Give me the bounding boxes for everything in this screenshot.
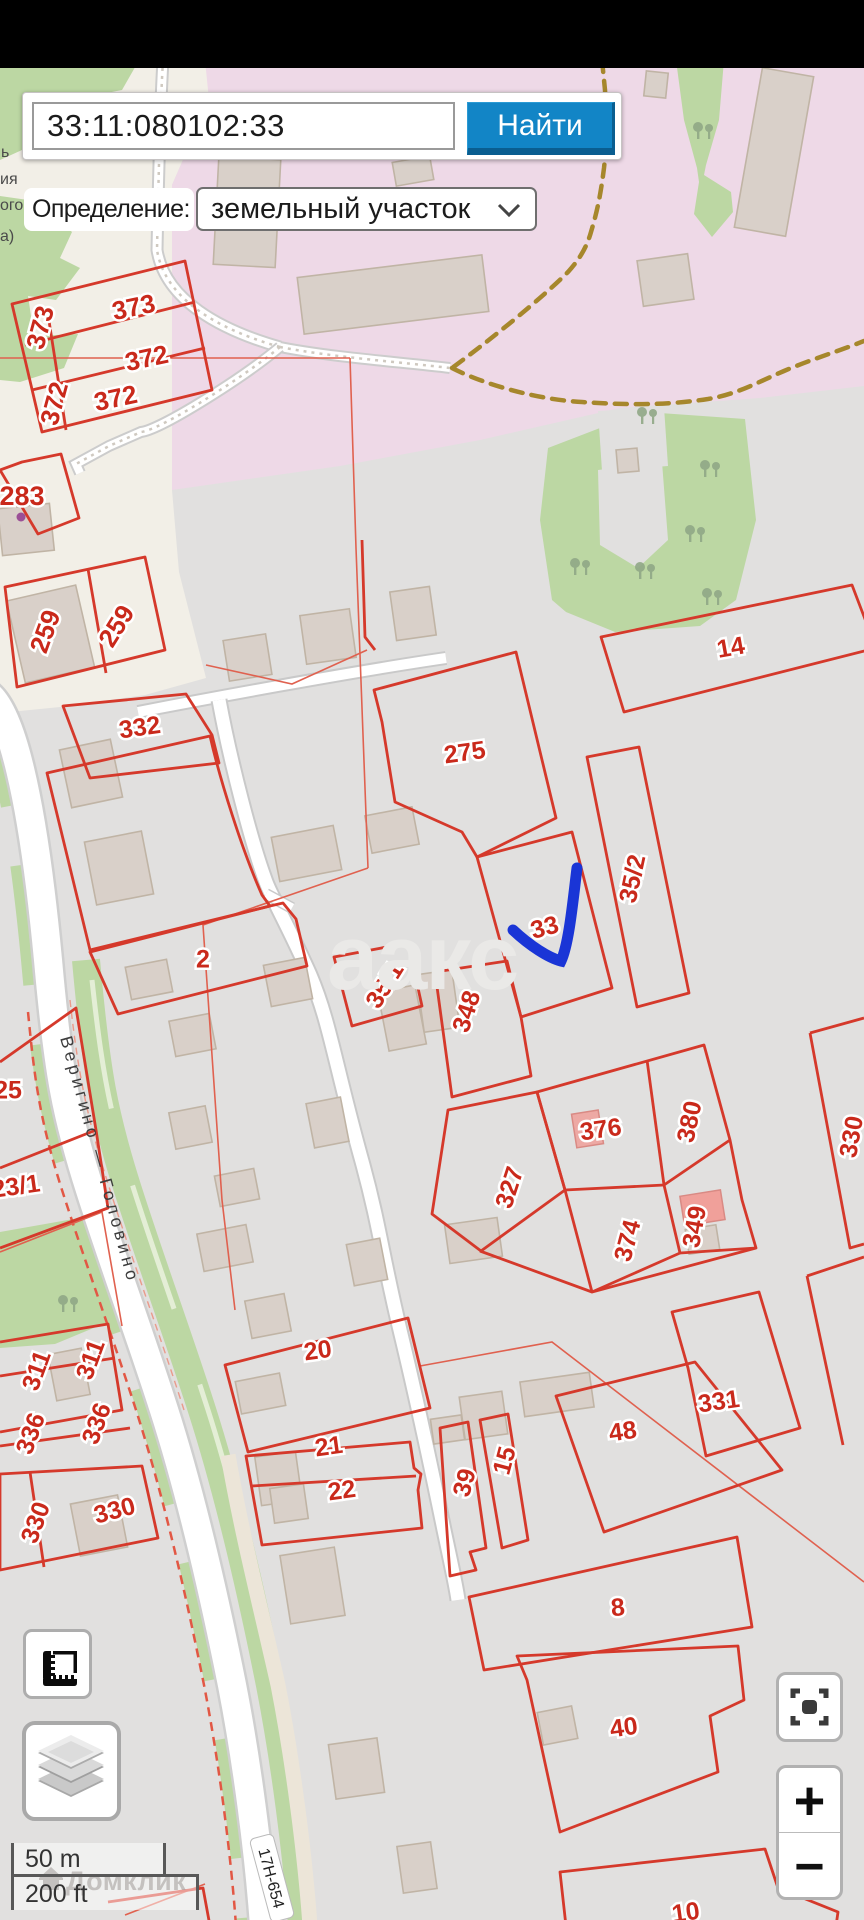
svg-text:376: 376 bbox=[578, 1113, 623, 1147]
svg-text:25: 25 bbox=[0, 1077, 22, 1105]
svg-text:ия: ия bbox=[0, 171, 18, 188]
svg-text:331: 331 bbox=[696, 1385, 741, 1419]
svg-text:40: 40 bbox=[608, 1712, 639, 1744]
svg-text:20: 20 bbox=[302, 1335, 333, 1367]
svg-text:аакс: аакс bbox=[327, 907, 517, 1009]
svg-text:2: 2 bbox=[196, 946, 210, 974]
svg-text:ь: ь bbox=[1, 144, 9, 161]
svg-text:а): а) bbox=[0, 228, 14, 245]
svg-text:50 m: 50 m bbox=[25, 1845, 81, 1873]
svg-text:8: 8 bbox=[610, 1593, 626, 1622]
svg-text:275: 275 bbox=[442, 736, 487, 770]
svg-text:10: 10 bbox=[670, 1897, 701, 1920]
svg-text:22: 22 bbox=[326, 1475, 357, 1507]
svg-text:200 ft: 200 ft bbox=[25, 1880, 88, 1908]
svg-text:ого: ого bbox=[0, 197, 23, 214]
svg-text:283: 283 bbox=[0, 481, 45, 511]
svg-text:14: 14 bbox=[715, 631, 747, 663]
svg-text:21: 21 bbox=[313, 1431, 345, 1463]
svg-text:48: 48 bbox=[607, 1416, 639, 1448]
svg-text:332: 332 bbox=[117, 711, 162, 745]
